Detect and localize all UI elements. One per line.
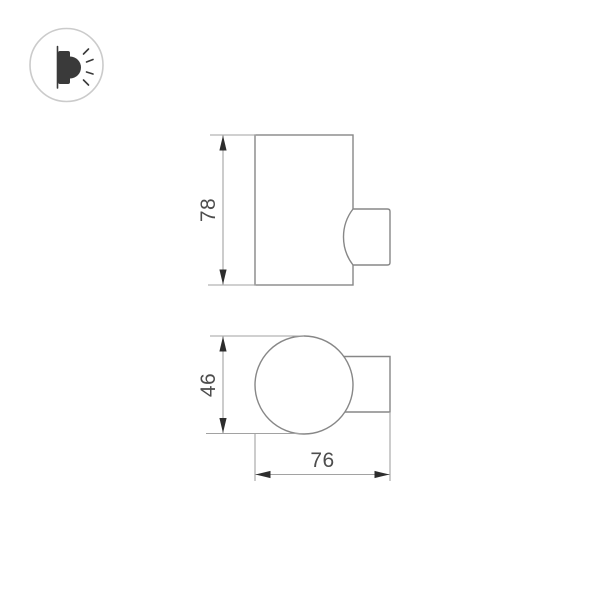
arrow-right-icon (375, 471, 390, 478)
side-view-mount (343, 209, 390, 265)
brand-badge (30, 29, 103, 102)
top-view (255, 336, 390, 434)
dimension-diameter-label: 46 (197, 373, 220, 397)
drawing-svg: 78 46 76 (0, 0, 600, 600)
arrow-down-icon (219, 418, 226, 433)
top-view-body (255, 336, 353, 434)
dimension-depth-label: 76 (310, 449, 334, 472)
side-view-body (255, 135, 353, 285)
arrow-left-icon (256, 471, 271, 478)
arrow-up-icon (219, 337, 226, 352)
dimension-height: 78 (197, 135, 256, 285)
technical-drawing-canvas: 78 46 76 (0, 0, 600, 600)
arrow-down-icon (219, 270, 226, 285)
side-view (255, 135, 390, 285)
arrow-up-icon (219, 136, 226, 151)
dimension-height-label: 78 (197, 198, 220, 222)
lamp-body (58, 51, 70, 84)
